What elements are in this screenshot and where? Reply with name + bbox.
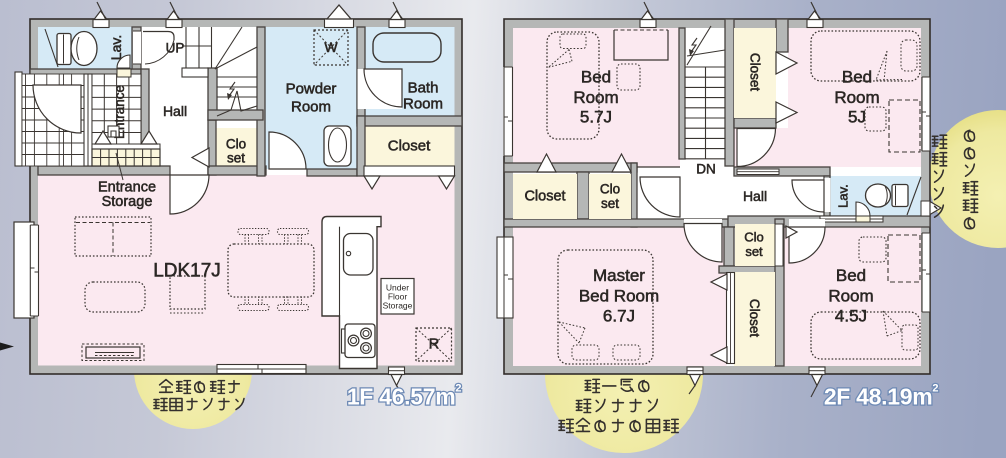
svg-text:Hall: Hall bbox=[743, 188, 767, 204]
svg-text:set: set bbox=[745, 244, 763, 259]
svg-text:1F 46.57m2: 1F 46.57m2 bbox=[347, 383, 462, 410]
svg-text:Clo: Clo bbox=[744, 230, 764, 245]
svg-text:R: R bbox=[429, 337, 439, 353]
svg-text:Room: Room bbox=[828, 287, 873, 306]
svg-text:Room: Room bbox=[291, 99, 331, 116]
svg-text:2F 48.19m2: 2F 48.19m2 bbox=[824, 383, 939, 410]
svg-text:Closet: Closet bbox=[748, 53, 763, 92]
svg-text:Lav.: Lav. bbox=[836, 184, 851, 208]
svg-text:Hall: Hall bbox=[163, 103, 187, 119]
svg-text:Clo: Clo bbox=[226, 137, 246, 152]
svg-text:4.5J: 4.5J bbox=[835, 307, 867, 326]
svg-text:5J: 5J bbox=[848, 108, 866, 127]
svg-text:DN: DN bbox=[696, 162, 716, 177]
svg-text:Closet: Closet bbox=[524, 189, 565, 205]
svg-text:Powder: Powder bbox=[286, 81, 337, 98]
svg-text:Storage: Storage bbox=[383, 301, 413, 311]
svg-text:Lav.: Lav. bbox=[108, 35, 124, 60]
svg-text:LDK17J: LDK17J bbox=[153, 261, 221, 282]
svg-text:Room: Room bbox=[834, 88, 879, 107]
svg-text:Bed: Bed bbox=[842, 68, 872, 87]
svg-text:5.7J: 5.7J bbox=[580, 108, 612, 127]
svg-text:Bed: Bed bbox=[581, 68, 611, 87]
svg-text:Closet: Closet bbox=[747, 299, 762, 338]
svg-text:UP: UP bbox=[166, 41, 185, 56]
svg-text:Bed Room: Bed Room bbox=[579, 287, 659, 306]
svg-text:Closet: Closet bbox=[388, 138, 431, 155]
svg-text:W: W bbox=[324, 39, 338, 55]
svg-text:Room: Room bbox=[573, 88, 618, 107]
svg-text:set: set bbox=[227, 151, 245, 166]
svg-text:Room: Room bbox=[403, 96, 443, 113]
svg-text:set: set bbox=[601, 196, 619, 211]
svg-text:Bed: Bed bbox=[836, 266, 866, 285]
svg-text:Clo: Clo bbox=[600, 182, 620, 197]
svg-text:Bath: Bath bbox=[408, 80, 439, 97]
svg-text:6.7J: 6.7J bbox=[603, 307, 635, 326]
svg-text:Master: Master bbox=[593, 266, 645, 285]
svg-text:Storage: Storage bbox=[102, 194, 153, 210]
